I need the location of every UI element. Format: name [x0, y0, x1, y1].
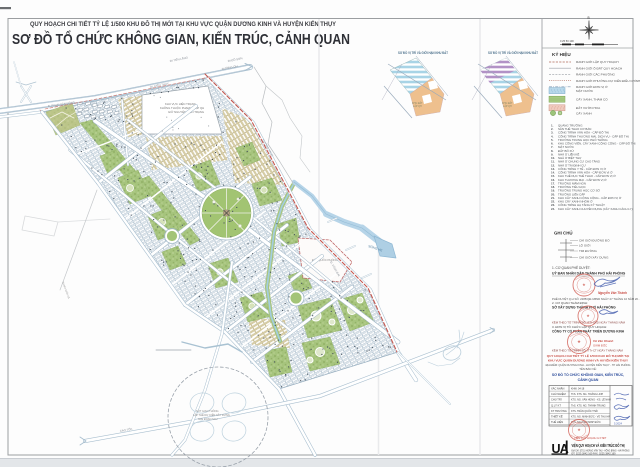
- svg-text:5.2024: 5.2024: [614, 422, 622, 426]
- svg-text:CHỈ GIỚI ĐƯỜNG ĐỎ: CHỈ GIỚI ĐƯỜNG ĐỎ: [579, 238, 610, 243]
- svg-text:LẬP QH: LẬP QH: [503, 105, 512, 108]
- svg-text:SƠ ĐỒ VỊ TRÍ VÀ GIỚI HẠN KHU Đ: SƠ ĐỒ VỊ TRÍ VÀ GIỚI HẠN KHU ĐẤT: [488, 50, 538, 55]
- svg-text:ĐT: 0225.3842.169 FAX: 022: ĐT: 0225.3842.169 FAX: 0225.3842.169: [572, 452, 617, 455]
- svg-text:Vũ Văn Khánh: Vũ Văn Khánh: [593, 339, 614, 343]
- svg-text:KHW: 04-18: KHW: 04-18: [571, 388, 585, 391]
- svg-text:KTS. NG. VĂN HÙNG - KS. LÊ NAM: KTS. NG. VĂN HÙNG - KS. LÊ NAM: [571, 399, 611, 402]
- svg-text:KÈM THEO TỜ TRÌNH SỐ: /TT: KÈM THEO TỜ TRÌNH SỐ: /TTr-SXD NGÀY THÁN…: [552, 320, 626, 325]
- svg-text:GIÁM ĐỐC: GIÁM ĐỐC: [593, 343, 607, 348]
- svg-text:TIM ĐƯỜNG: TIM ĐƯỜNG: [579, 248, 597, 253]
- svg-text:GIAI ĐOẠN SAU: GIAI ĐOẠN SAU: [198, 417, 218, 421]
- svg-text:SƠ ĐỒ TỔ CHỨC KHÔNG GIAN, KIẾN: SƠ ĐỒ TỔ CHỨC KHÔNG GIAN, KIẾN TRÚC, CẢN…: [12, 30, 350, 48]
- svg-text:★: ★: [577, 427, 581, 432]
- svg-text:KÝ HIỆU: KÝ HIỆU: [552, 50, 571, 57]
- svg-text:24.: 24.: [551, 207, 555, 211]
- svg-text:LẬP QH: LẬP QH: [413, 105, 422, 108]
- svg-text:★: ★: [586, 314, 590, 318]
- svg-text:2. CƠ QUAN THẨM ĐỊNH:: 2. CƠ QUAN THẨM ĐỊNH:: [552, 300, 588, 305]
- svg-text:1. CƠ QUAN PHÊ DUYỆT:: 1. CƠ QUAN PHÊ DUYỆT:: [552, 265, 590, 270]
- svg-text:SƠ ĐỒ TỔ CHỨC KHÔNG GIAN, KIẾN: SƠ ĐỒ TỔ CHỨC KHÔNG GIAN, KIẾN TRÚC,: [552, 372, 624, 377]
- svg-text:★: ★: [582, 282, 586, 287]
- svg-text:ThS. KTS. NG. HOÀNG LINH: ThS. KTS. NG. HOÀNG LINH: [571, 393, 603, 396]
- svg-text:QUY HOẠCH CHI TIẾT TỶ LỆ 1/500: QUY HOẠCH CHI TIẾT TỶ LỆ 1/500 KHU ĐÔ TH…: [547, 353, 630, 358]
- svg-text:CÂY XANH, THẢM CỎ: CÂY XANH, THẢM CỎ: [576, 97, 608, 102]
- svg-text:Q.LÝ KT: Q.LÝ KT: [551, 403, 561, 407]
- svg-text:3. ĐƠN VỊ TỔ CHỨC LẬP QUY HOẠC: 3. ĐƠN VỊ TỔ CHỨC LẬP QUY HOẠCH:: [552, 324, 607, 329]
- svg-text:RANH GIỚI Ô ĐẤT QUY HOẠCH: RANH GIỚI Ô ĐẤT QUY HOẠCH: [576, 65, 622, 70]
- svg-text:KTS. TRẦN QUỐC THÁI: KTS. TRẦN QUỐC THÁI: [571, 410, 598, 413]
- svg-text:KHU VỰC QUẬN DƯƠNG KINH VÀ HUY: KHU VỰC QUẬN DƯƠNG KINH VÀ HUYỆN KIẾN TH…: [548, 358, 629, 363]
- svg-text:RANH GIỚI CÁC PHƯỜNG: RANH GIỚI CÁC PHƯỜNG: [576, 72, 615, 77]
- svg-text:★: ★: [577, 339, 581, 344]
- svg-text:0 25 50 100: 0 25 50 100: [560, 39, 574, 43]
- svg-text:LỘ GIỚI: LỘ GIỚI: [579, 243, 591, 248]
- svg-text:QUY HOẠCH CHI TIẾT TỶ LỆ 1/500: QUY HOẠCH CHI TIẾT TỶ LỆ 1/500 KHU ĐÔ TH…: [30, 20, 336, 28]
- svg-text:Nguyễn Văn Thành: Nguyễn Văn Thành: [598, 290, 627, 295]
- svg-text:TÊN BẢN VẼ:: TÊN BẢN VẼ:: [579, 366, 597, 371]
- svg-text:B: B: [588, 16, 590, 20]
- svg-text:CẢNH QUAN: CẢNH QUAN: [578, 377, 599, 382]
- svg-text:MẶT NƯỚC: MẶT NƯỚC: [576, 88, 594, 93]
- svg-text:VIỆN QUY HOẠCH VÀ KIẾN TRÚC ĐÔ: VIỆN QUY HOẠCH VÀ KIẾN TRÚC ĐÔ THỊ: [572, 443, 625, 448]
- svg-text:KTS. NG. MINH ĐỨC - VŨ THU HÀ: KTS. NG. MINH ĐỨC - VŨ THU HÀ: [571, 416, 610, 419]
- svg-text:ThS. KTS. NG. THÀNH TRUNG: ThS. KTS. NG. THÀNH TRUNG: [571, 404, 606, 407]
- svg-text:RANH GIỚI LẬP QUY HOẠCH: RANH GIỚI LẬP QUY HOẠCH: [576, 59, 619, 64]
- svg-text:CÂY XANH: CÂY XANH: [576, 112, 592, 116]
- svg-text:KÈM THEO TỜ TRÌNH SỐ: /TT: KÈM THEO TỜ TRÌNH SỐ: /TTr-CT NGÀY THÁNG…: [552, 348, 623, 353]
- svg-text:CÔNG TY CỔ PHẦN PHÁT TRIỂN DƯƠ: CÔNG TY CỔ PHẦN PHÁT TRIỂN DƯƠNG KINH: [552, 329, 625, 334]
- svg-text:ĐẤT VƯỜN HOA: ĐẤT VƯỜN HOA: [576, 105, 601, 110]
- svg-text:KHU CÂY XANH CHUYÊN DỤNG (CÂY: KHU CÂY XANH CHUYÊN DỤNG (CÂY XANH CÁCH …: [558, 206, 633, 211]
- svg-text:CHỈ GIỚI XÂY DỰNG: CHỈ GIỚI XÂY DỰNG: [579, 255, 609, 260]
- svg-text:GHI CHÚ: GHI CHÚ: [554, 231, 573, 236]
- svg-text:SƠ ĐỒ VỊ TRÍ VÀ GIỚI HẠN KHU Đ: SƠ ĐỒ VỊ TRÍ VÀ GIỚI HẠN KHU ĐẤT: [398, 50, 448, 55]
- svg-text:RANH GIỚI PHƯỜNG DỰ KIẾN ĐIỀU: RANH GIỚI PHƯỜNG DỰ KIẾN ĐIỀU CHỈNH: [576, 78, 640, 83]
